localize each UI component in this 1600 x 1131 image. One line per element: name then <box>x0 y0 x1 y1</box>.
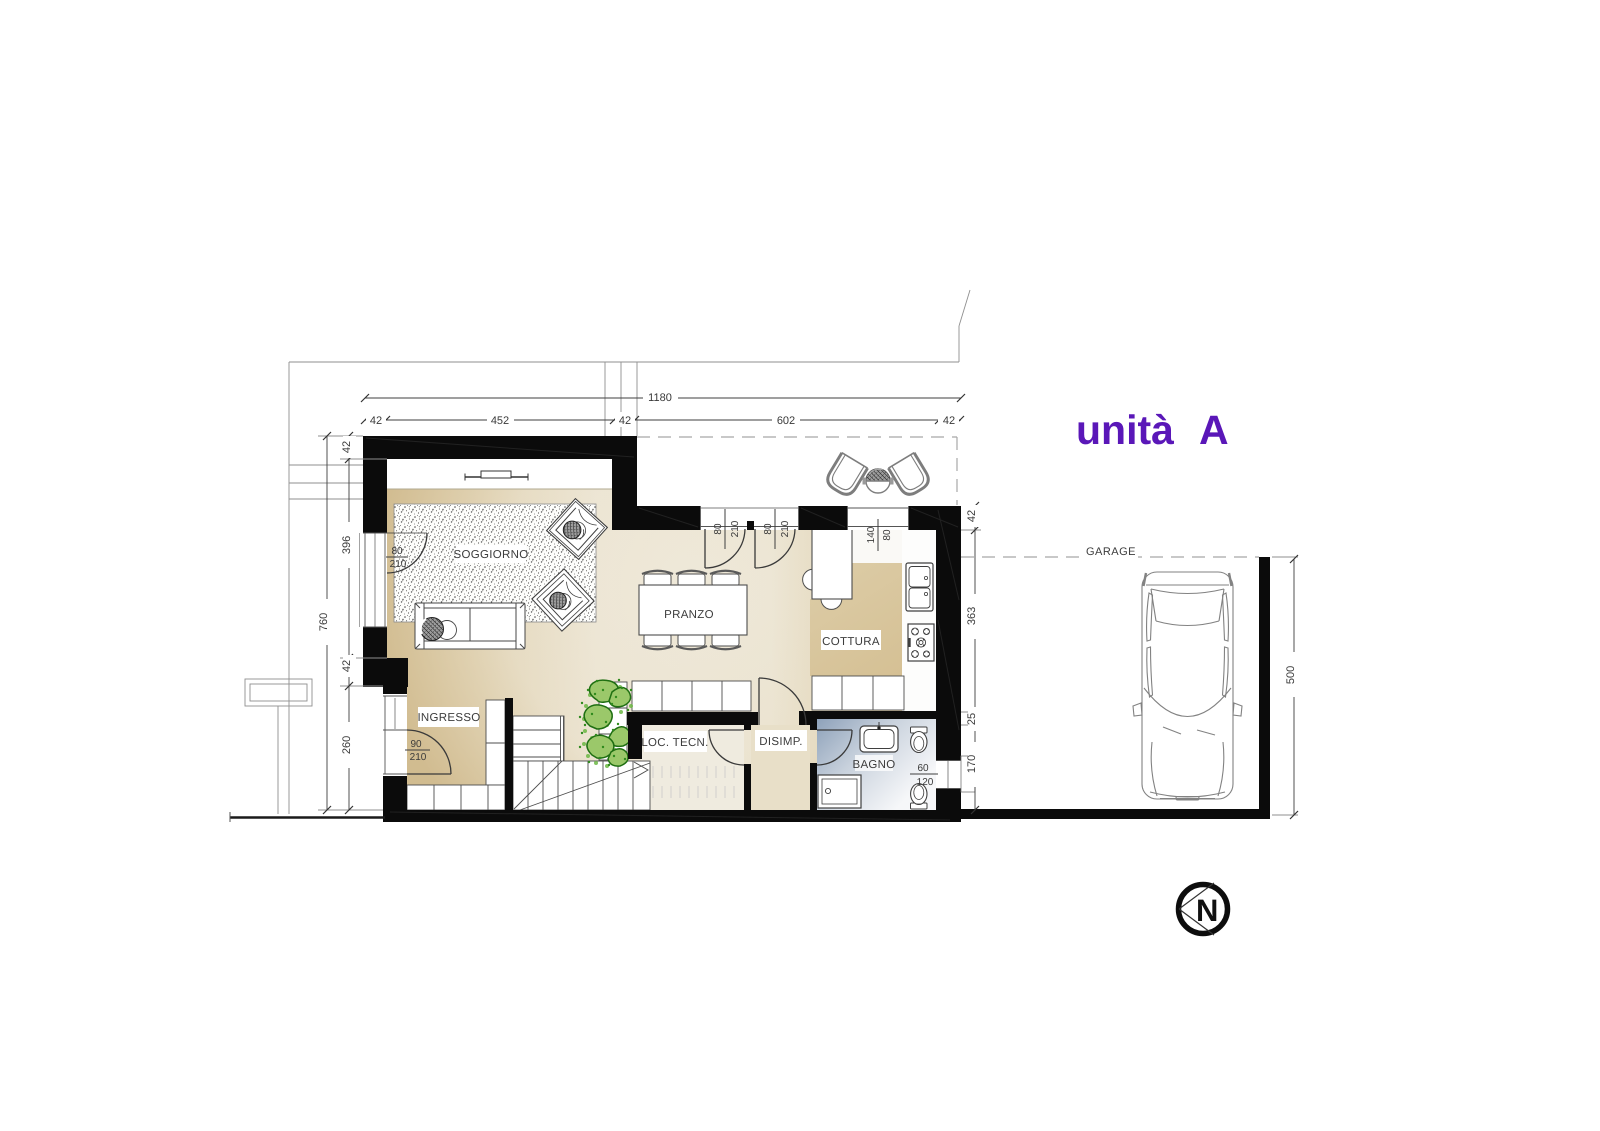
svg-text:SOGGIORNO: SOGGIORNO <box>454 549 529 561</box>
svg-text:80: 80 <box>882 529 893 541</box>
svg-text:210: 210 <box>780 520 791 537</box>
svg-text:LOC. TECN.: LOC. TECN. <box>641 737 708 749</box>
svg-text:363: 363 <box>966 607 978 625</box>
svg-text:GARAGE: GARAGE <box>1086 546 1136 558</box>
svg-text:42: 42 <box>370 415 382 427</box>
svg-text:DISIMP.: DISIMP. <box>759 736 802 748</box>
svg-text:42: 42 <box>943 415 955 427</box>
svg-text:INGRESSO: INGRESSO <box>417 712 480 724</box>
svg-text:602: 602 <box>777 415 795 427</box>
svg-text:140: 140 <box>866 526 877 543</box>
svg-text:210: 210 <box>390 559 407 570</box>
svg-text:396: 396 <box>341 536 353 554</box>
svg-text:BAGNO: BAGNO <box>852 759 895 771</box>
svg-text:42: 42 <box>341 441 353 453</box>
svg-text:PRANZO: PRANZO <box>664 609 714 621</box>
svg-text:210: 210 <box>410 752 427 763</box>
svg-text:42: 42 <box>619 415 631 427</box>
svg-text:25: 25 <box>966 713 978 725</box>
svg-text:760: 760 <box>318 613 330 631</box>
svg-text:80: 80 <box>763 523 774 535</box>
svg-text:COTTURA: COTTURA <box>822 636 880 648</box>
svg-text:80: 80 <box>713 523 724 535</box>
svg-text:N: N <box>1196 893 1218 928</box>
svg-text:42: 42 <box>966 510 978 522</box>
svg-text:120: 120 <box>917 777 934 788</box>
svg-text:170: 170 <box>966 755 978 773</box>
svg-text:42: 42 <box>341 660 353 672</box>
svg-text:452: 452 <box>491 415 509 427</box>
svg-text:210: 210 <box>730 520 741 537</box>
svg-text:260: 260 <box>341 736 353 754</box>
svg-text:unità: unità <box>1076 407 1174 453</box>
svg-text:90: 90 <box>410 739 422 750</box>
svg-text:60: 60 <box>917 763 929 774</box>
svg-text:80: 80 <box>391 546 403 557</box>
svg-text:A: A <box>1199 407 1229 453</box>
svg-text:1180: 1180 <box>648 392 672 404</box>
svg-text:500: 500 <box>1285 666 1297 684</box>
